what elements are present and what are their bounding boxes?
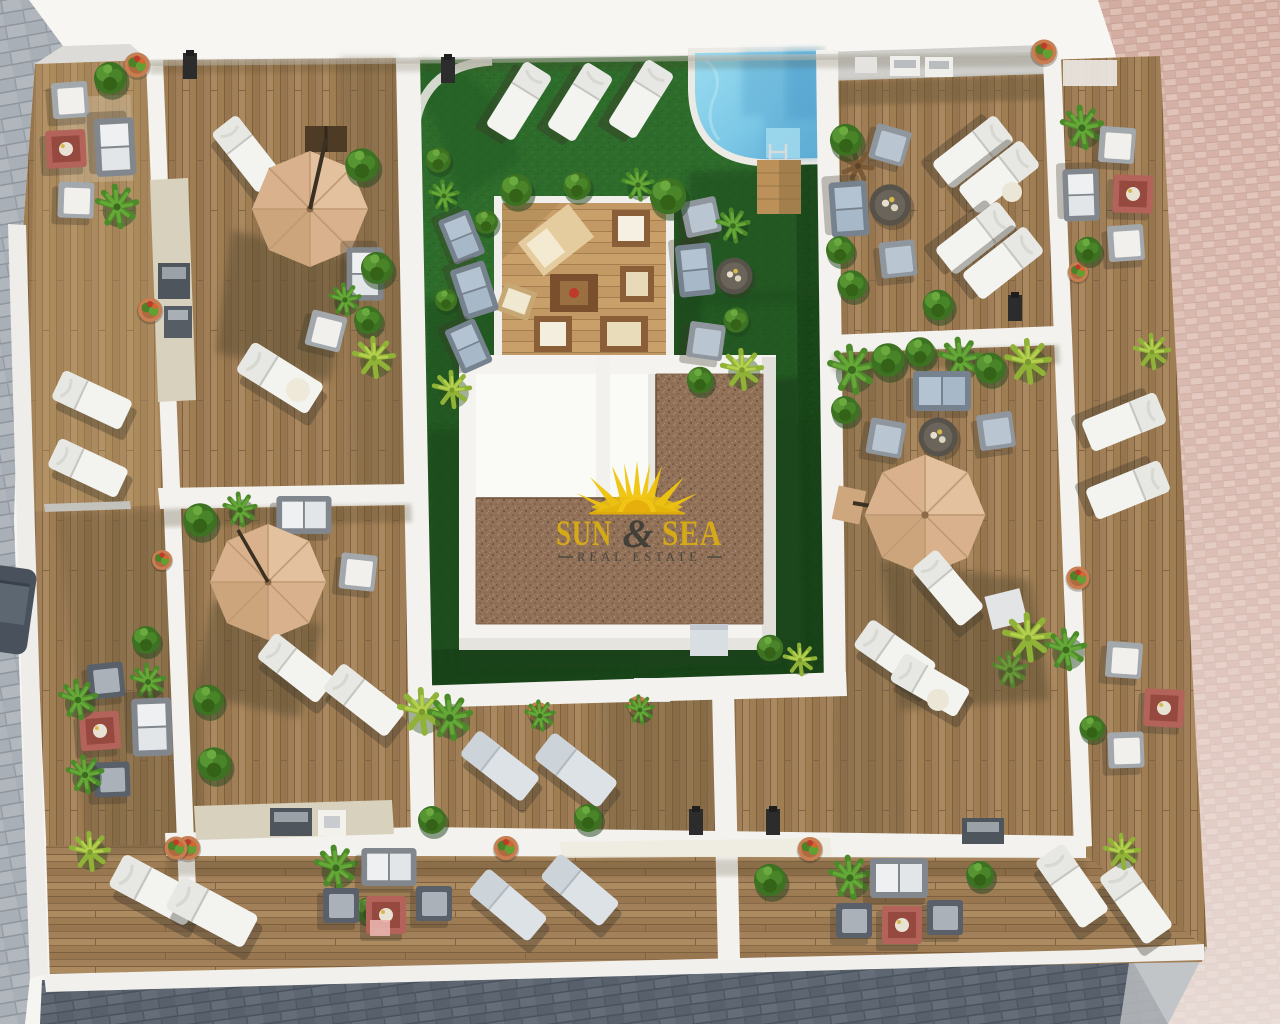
svg-text:SUN: SUN bbox=[556, 513, 612, 553]
svg-text:SEA: SEA bbox=[662, 513, 722, 553]
svg-text:REAL ESTATE: REAL ESTATE bbox=[577, 550, 701, 564]
